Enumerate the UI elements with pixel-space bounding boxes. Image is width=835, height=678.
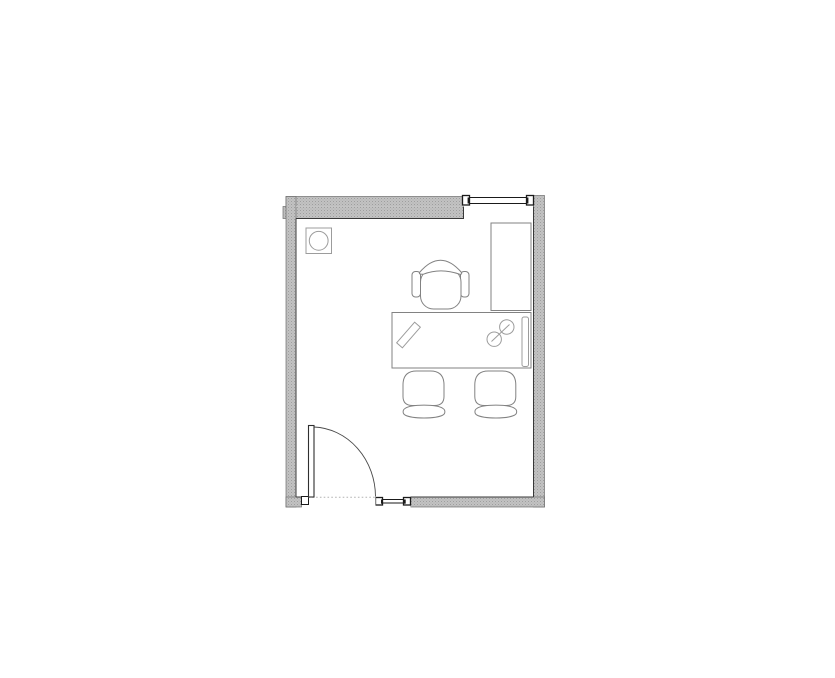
desk-return-panel (522, 317, 529, 367)
south-window-tick-left (381, 500, 383, 504)
door-opening (309, 497, 376, 508)
south-window-tick-right (404, 500, 406, 504)
task-chair-armrest-left (412, 272, 421, 298)
door-leaf (309, 426, 315, 498)
north-window-opening (463, 195, 534, 207)
wall-left (286, 197, 296, 508)
north-window (463, 195, 534, 207)
guest-chair-left-seat (403, 371, 444, 406)
guest-chair-right-seat (475, 371, 516, 406)
wall-bottom-right (411, 497, 545, 507)
guest-chair-right (475, 371, 517, 418)
guest-chair-right-backrest (475, 405, 517, 418)
wall-top (286, 197, 464, 207)
page-canvas: Small private office floor plan (0, 0, 835, 678)
wall-bottom-left-stub (286, 497, 302, 507)
storage-cabinet (491, 223, 531, 311)
task-chair-seat (421, 269, 462, 309)
guest-chair-left-backrest (403, 405, 445, 418)
south-window (376, 497, 411, 508)
door-jamb (302, 497, 309, 505)
wall-right (534, 196, 545, 508)
guest-chair-left (403, 371, 445, 418)
north-window-tick-left (468, 198, 470, 204)
wall-top-thick-band (283, 207, 464, 219)
waste-bin (306, 228, 332, 254)
floor-plan: Small private office floor plan (281, 193, 547, 509)
door-swing-arc (314, 427, 376, 497)
desk-group (392, 313, 531, 369)
task-chair-armrest-right (461, 272, 470, 298)
north-window-tick-right (527, 198, 529, 204)
entry-door (302, 426, 376, 508)
task-chair (412, 260, 469, 309)
